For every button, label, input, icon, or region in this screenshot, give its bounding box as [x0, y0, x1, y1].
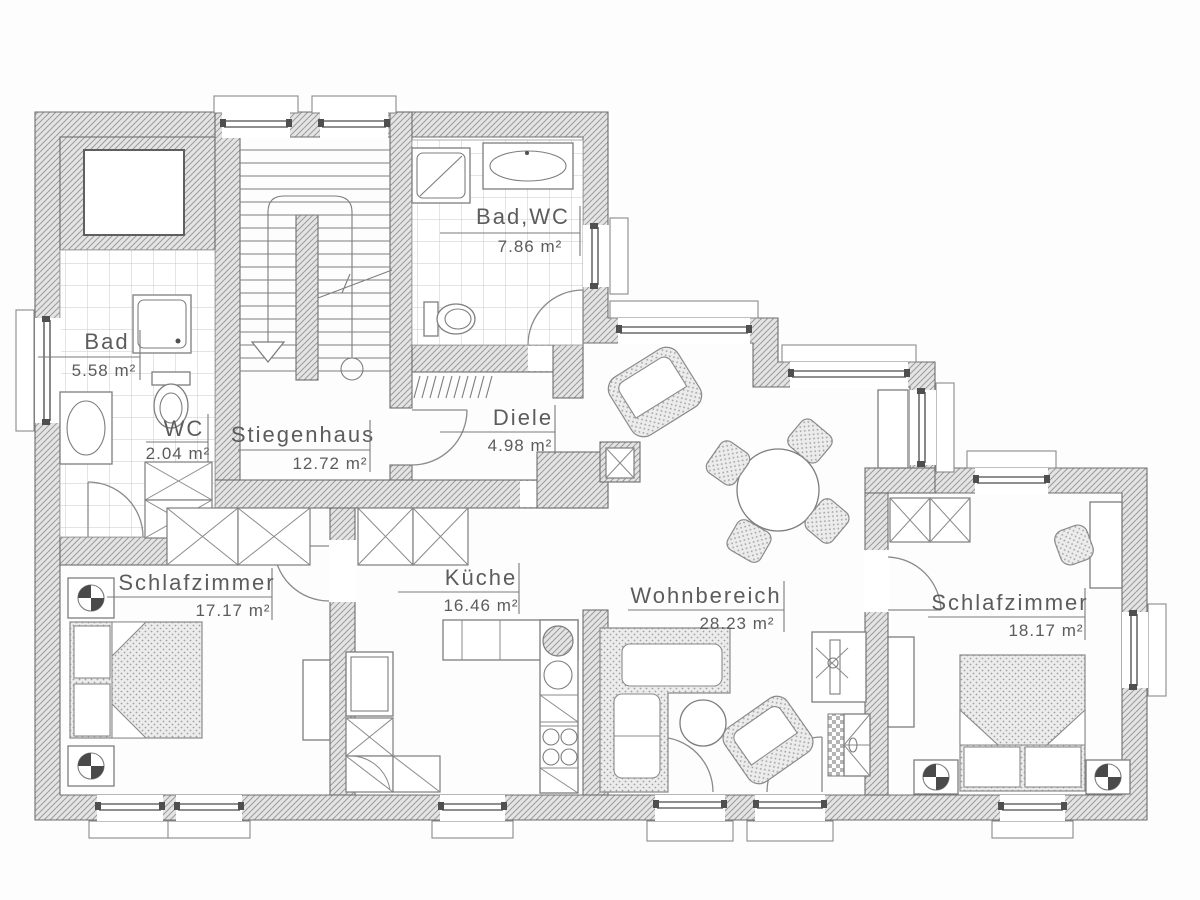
- kitchen-counter: [443, 620, 578, 793]
- desk: [1052, 502, 1122, 588]
- window: [967, 451, 1056, 494]
- room-name: Diele: [493, 405, 553, 430]
- room-kueche-fixtures: [346, 508, 578, 793]
- wardrobe: [890, 498, 970, 542]
- dresser: [303, 660, 330, 740]
- bathtub: [483, 143, 573, 189]
- nightstand: [914, 760, 958, 794]
- room-name: Schlafzimmer: [931, 590, 1088, 615]
- window: [89, 795, 171, 838]
- sink: [543, 626, 573, 656]
- wardrobe: [358, 508, 468, 565]
- floor-plan-canvas: Bad,WC 7.86 m² Bad 5.58 m² WC 2.04 m² St…: [0, 0, 1200, 900]
- room-label-schlafzimmer-right: Schlafzimmer 18.17 m²: [928, 588, 1089, 640]
- window: [312, 96, 396, 138]
- room-name: Schlafzimmer: [118, 570, 275, 595]
- room-area: 18.17 m²: [1008, 621, 1083, 640]
- room-name: Stiegenhaus: [231, 422, 375, 447]
- window: [432, 795, 513, 838]
- tv-board: [812, 632, 866, 702]
- double-bed: [70, 622, 202, 738]
- room-name: WC: [164, 416, 205, 441]
- window: [214, 96, 298, 138]
- room-area: 5.58 m²: [72, 361, 137, 380]
- dishwasher: [346, 756, 393, 792]
- nightstand: [1086, 760, 1130, 794]
- wardrobe-tall: [888, 637, 914, 727]
- armchair: [603, 342, 707, 442]
- room-name: Wohnbereich: [630, 583, 781, 608]
- floor-plan: Bad,WC 7.86 m² Bad 5.58 m² WC 2.04 m² St…: [0, 0, 1200, 900]
- window: [910, 383, 954, 472]
- room-area: 12.72 m²: [292, 454, 367, 473]
- room-area: 2.04 m²: [146, 444, 211, 463]
- room-area: 28.23 m²: [699, 614, 774, 633]
- window: [610, 301, 758, 344]
- stair-divider-wall: [296, 215, 318, 380]
- window: [1122, 604, 1166, 696]
- stair-break-line: [318, 270, 392, 298]
- doormat: [414, 376, 492, 398]
- room-name: Bad,WC: [476, 204, 570, 229]
- stair-start-mark: [341, 358, 363, 380]
- window: [992, 795, 1073, 838]
- room-label-stiegenhaus: Stiegenhaus 12.72 m²: [231, 420, 375, 473]
- washbasin: [60, 392, 112, 464]
- room-area: 4.98 m²: [488, 436, 553, 455]
- base-cabinet: [393, 756, 440, 792]
- wardrobe: [167, 508, 310, 565]
- window: [16, 310, 61, 431]
- room-label-diele: Diele 4.98 m²: [440, 405, 555, 455]
- double-bed: [960, 655, 1085, 791]
- room-name: Bad: [84, 329, 129, 354]
- room-schlafzimmer-right-fixtures: [888, 498, 1130, 794]
- window: [782, 345, 916, 388]
- ventilation-shaft: [606, 448, 634, 478]
- nightstand: [68, 578, 114, 618]
- room-label-wohnbereich: Wohnbereich 28.23 m²: [628, 581, 784, 633]
- stair-down-arrow-icon: [252, 342, 284, 362]
- room-label-kueche: Küche 16.46 m²: [398, 563, 519, 615]
- room-area: 7.86 m²: [498, 237, 563, 256]
- tiled-stove: [828, 714, 870, 776]
- window: [583, 218, 628, 294]
- armchair: [718, 691, 818, 789]
- base-cabinet: [346, 718, 393, 756]
- room-wohnbereich-fixtures: [600, 342, 908, 792]
- window: [168, 795, 250, 838]
- room-area: 17.17 m²: [195, 601, 270, 620]
- room-label-schlafzimmer-left: Schlafzimmer 17.17 m²: [107, 568, 276, 620]
- room-name: Küche: [445, 565, 517, 590]
- dining-table: [703, 416, 852, 565]
- shower: [133, 295, 191, 353]
- chimney-shaft: [84, 150, 184, 235]
- room-area: 16.46 m²: [443, 596, 518, 615]
- toilet: [424, 302, 475, 336]
- door: [412, 410, 467, 465]
- sideboard: [878, 390, 908, 468]
- nightstand: [68, 746, 114, 786]
- coffee-table: [680, 700, 726, 746]
- fridge: [346, 652, 393, 716]
